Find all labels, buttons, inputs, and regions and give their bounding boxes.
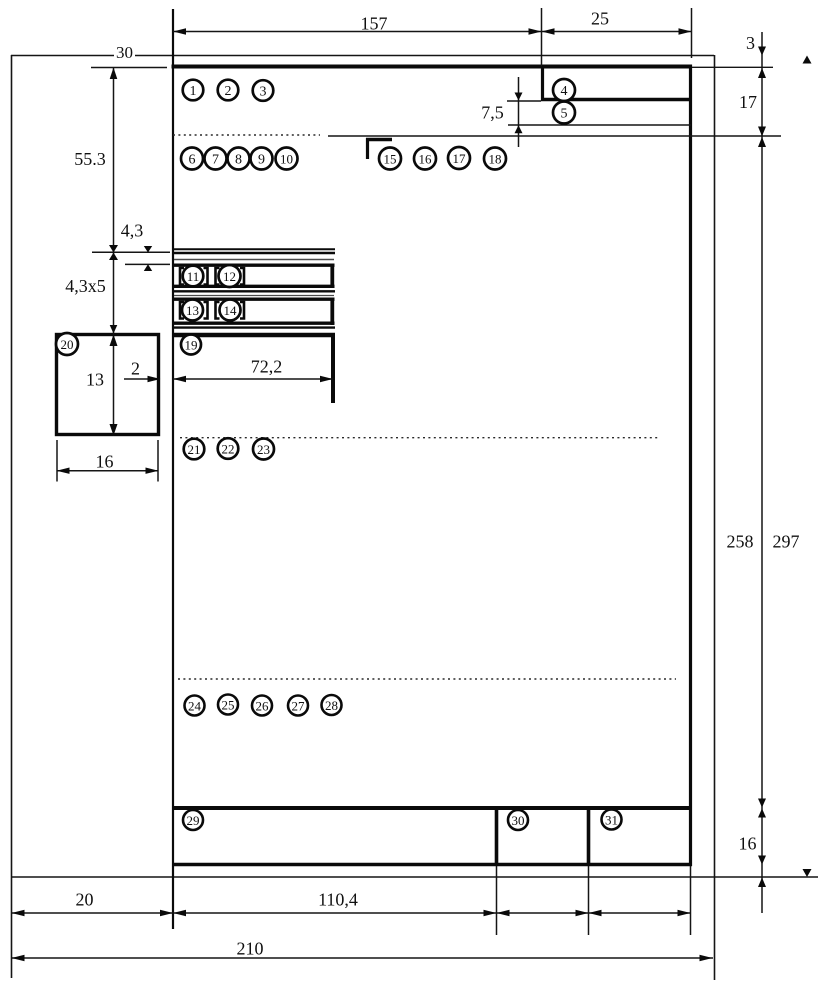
svg-text:22: 22 [222, 442, 235, 457]
svg-text:3: 3 [746, 33, 755, 53]
svg-text:258: 258 [727, 532, 754, 552]
svg-text:4,3: 4,3 [121, 221, 144, 241]
svg-text:7,5: 7,5 [481, 103, 504, 123]
svg-text:20: 20 [61, 337, 74, 352]
svg-text:3: 3 [260, 85, 267, 100]
svg-text:17: 17 [453, 151, 467, 166]
svg-text:10: 10 [280, 152, 293, 167]
svg-text:28: 28 [325, 698, 338, 713]
svg-text:1: 1 [190, 84, 197, 99]
svg-text:16: 16 [96, 452, 114, 472]
svg-text:55.3: 55.3 [74, 149, 106, 169]
svg-text:15: 15 [384, 152, 397, 167]
svg-text:72,2: 72,2 [251, 357, 283, 377]
svg-text:25: 25 [591, 9, 609, 29]
svg-text:5: 5 [561, 107, 568, 122]
svg-text:27: 27 [292, 699, 306, 714]
svg-text:16: 16 [739, 834, 757, 854]
svg-text:157: 157 [361, 14, 388, 34]
svg-text:297: 297 [773, 532, 800, 552]
svg-text:17: 17 [739, 92, 757, 112]
svg-text:16: 16 [419, 152, 433, 167]
svg-text:8: 8 [235, 153, 242, 168]
svg-text:12: 12 [223, 269, 236, 284]
svg-text:11: 11 [187, 269, 200, 284]
svg-text:31: 31 [605, 813, 618, 828]
svg-text:210: 210 [237, 939, 264, 959]
svg-text:21: 21 [188, 442, 201, 457]
svg-text:110,4: 110,4 [318, 890, 358, 910]
svg-text:14: 14 [224, 303, 238, 318]
svg-text:23: 23 [257, 442, 270, 457]
svg-text:13: 13 [86, 370, 104, 390]
svg-text:20: 20 [76, 890, 94, 910]
svg-text:2: 2 [225, 84, 232, 99]
svg-text:30: 30 [512, 813, 525, 828]
svg-text:18: 18 [489, 152, 502, 167]
svg-text:4: 4 [561, 84, 568, 99]
svg-text:25: 25 [222, 698, 235, 713]
svg-text:29: 29 [187, 813, 200, 828]
svg-text:2: 2 [131, 359, 140, 379]
svg-text:19: 19 [185, 338, 198, 353]
svg-text:26: 26 [256, 699, 270, 714]
svg-text:30: 30 [116, 43, 133, 62]
svg-text:13: 13 [186, 303, 199, 318]
svg-text:9: 9 [258, 153, 265, 168]
svg-text:24: 24 [188, 699, 202, 714]
svg-text:6: 6 [189, 153, 196, 168]
svg-text:4,3x5: 4,3x5 [65, 276, 106, 296]
svg-text:7: 7 [212, 153, 219, 168]
